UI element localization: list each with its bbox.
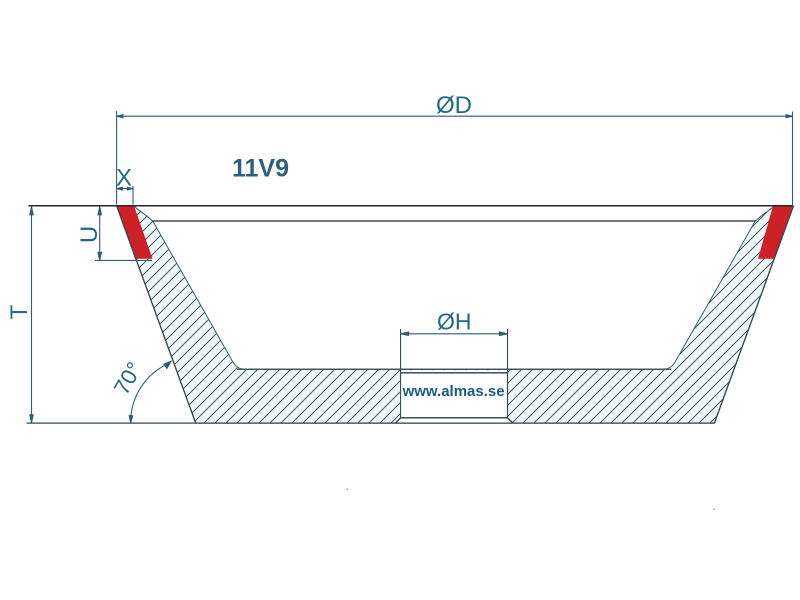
svg-text:70°: 70° [109, 358, 147, 399]
svg-text:X: X [116, 165, 132, 192]
svg-text:T: T [6, 304, 33, 319]
svg-text:11V9: 11V9 [232, 155, 289, 183]
svg-text:U: U [76, 226, 103, 243]
svg-text:ØD: ØD [436, 92, 472, 119]
svg-text:www.almas.se: www.almas.se [402, 383, 505, 400]
svg-text:ØH: ØH [437, 309, 472, 335]
